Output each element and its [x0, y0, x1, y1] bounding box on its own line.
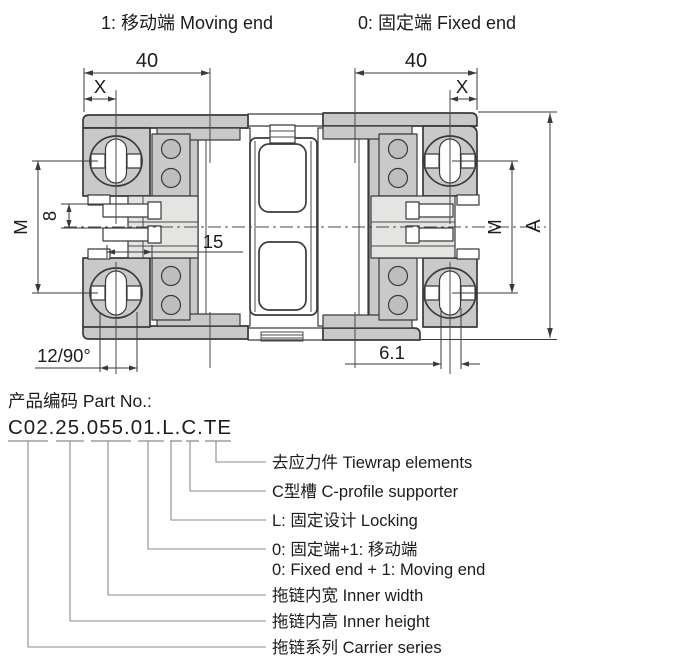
left-pin-2 — [103, 228, 148, 241]
dim-label-x-right: X — [456, 76, 468, 97]
catalog-page: 1: 移动端 Moving end 0: 固定端 Fixed end — [0, 0, 700, 663]
breakdown-leaders — [28, 441, 266, 647]
part-no-heading: 产品编码 Part No.: — [8, 391, 152, 411]
breakdown-label-end-type: 0: 固定端+1: 移动端 — [272, 540, 417, 559]
breakdown-labels: 去应力件 Tiewrap elements C型槽 C-profile supp… — [272, 453, 485, 657]
part-number-section: 产品编码 Part No.: C02.25.055.01.L.C.TE 去应力件… — [8, 391, 485, 657]
breakdown-label-locking: L: 固定设计 Locking — [272, 511, 418, 530]
right-pin-2 — [419, 228, 453, 241]
dim-label-15: 15 — [203, 231, 224, 252]
dim-x-left: X — [84, 76, 116, 102]
pivot-hole — [162, 267, 181, 286]
pivot-hole — [389, 296, 408, 315]
breakdown-label-inner-height: 拖链内高 Inner height — [272, 612, 430, 631]
dim-label-40-right: 40 — [405, 50, 427, 72]
dim-label-6-1: 6.1 — [379, 342, 405, 363]
left-bottom-rail — [83, 326, 248, 339]
technical-drawing-figure: 1: 移动端 Moving end 0: 固定端 Fixed end — [0, 0, 700, 663]
top-center-plate — [248, 114, 323, 126]
part-number: C02.25.055.01.L.C.TE — [8, 417, 232, 439]
dim-label-a: A — [523, 219, 545, 233]
breakdown-label-carrier-series: 拖链系列 Carrier series — [272, 638, 442, 657]
pivot-hole — [162, 140, 181, 159]
right-top-rail — [323, 113, 477, 126]
carrier-end-connector-drawing — [64, 68, 546, 374]
moving-end-label: 1: 移动端 Moving end — [101, 13, 273, 33]
pivot-hole — [389, 140, 408, 159]
link-latch-top — [270, 125, 295, 143]
breakdown-label-inner-width: 拖链内宽 Inner width — [272, 586, 423, 605]
dim-label-40-left: 40 — [136, 50, 158, 72]
fixed-end-label: 0: 固定端 Fixed end — [358, 13, 516, 33]
pivot-hole — [389, 169, 408, 188]
dim-pin-pitch: 8 — [39, 204, 106, 228]
breakdown-label-tiewrap: 去应力件 Tiewrap elements — [272, 453, 472, 472]
left-top-rail — [83, 115, 248, 128]
dim-x-right: X — [450, 76, 477, 102]
breakdown-label-end-type-en: 0: Fixed end + 1: Moving end — [272, 561, 485, 579]
dim-label-8: 8 — [39, 211, 60, 221]
dim-label-m-right: M — [484, 219, 505, 234]
pivot-hole — [162, 296, 181, 315]
dim-label-12-90: 12/90° — [37, 345, 91, 366]
dim-label-x-left: X — [94, 76, 106, 97]
chain-link — [250, 125, 317, 341]
link-window-top — [259, 144, 306, 212]
left-pin-1 — [103, 204, 148, 217]
pivot-hole — [389, 267, 408, 286]
dim-label-m-left: M — [10, 219, 31, 234]
right-pin-1 — [419, 204, 453, 217]
breakdown-label-c-profile: C型槽 C-profile supporter — [272, 482, 459, 501]
right-bottom-rail — [323, 328, 420, 340]
pivot-hole — [162, 169, 181, 188]
end-labels: 1: 移动端 Moving end 0: 固定端 Fixed end — [101, 13, 516, 33]
link-window-bottom — [259, 242, 306, 310]
